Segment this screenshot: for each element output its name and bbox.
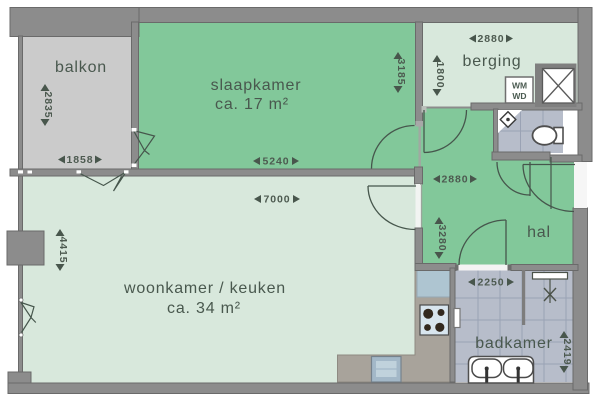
svg-text:5240: 5240 (263, 156, 290, 168)
svg-text:WD: WD (512, 91, 526, 101)
svg-text:3185: 3185 (395, 59, 407, 86)
svg-text:WM: WM (512, 81, 527, 91)
svg-text:ca. 17 m²: ca. 17 m² (215, 96, 289, 113)
svg-text:woonkamer / keuken: woonkamer / keuken (123, 280, 286, 297)
svg-text:2880: 2880 (478, 33, 505, 45)
svg-text:7000: 7000 (264, 194, 291, 206)
svg-text:berging: berging (463, 53, 522, 70)
svg-text:hal: hal (527, 224, 551, 241)
svg-text:2835: 2835 (42, 92, 54, 119)
svg-text:2419: 2419 (561, 339, 573, 366)
svg-text:badkamer: badkamer (475, 335, 553, 352)
svg-text:1858: 1858 (67, 154, 94, 166)
svg-text:slaapkamer: slaapkamer (211, 77, 302, 94)
svg-text:1800: 1800 (434, 62, 446, 89)
svg-text:2880: 2880 (442, 174, 469, 186)
svg-text:4415: 4415 (57, 237, 69, 264)
svg-text:2250: 2250 (478, 277, 505, 289)
svg-text:balkon: balkon (55, 59, 107, 76)
svg-text:3280: 3280 (436, 225, 448, 252)
svg-text:ca. 34 m²: ca. 34 m² (167, 300, 241, 317)
